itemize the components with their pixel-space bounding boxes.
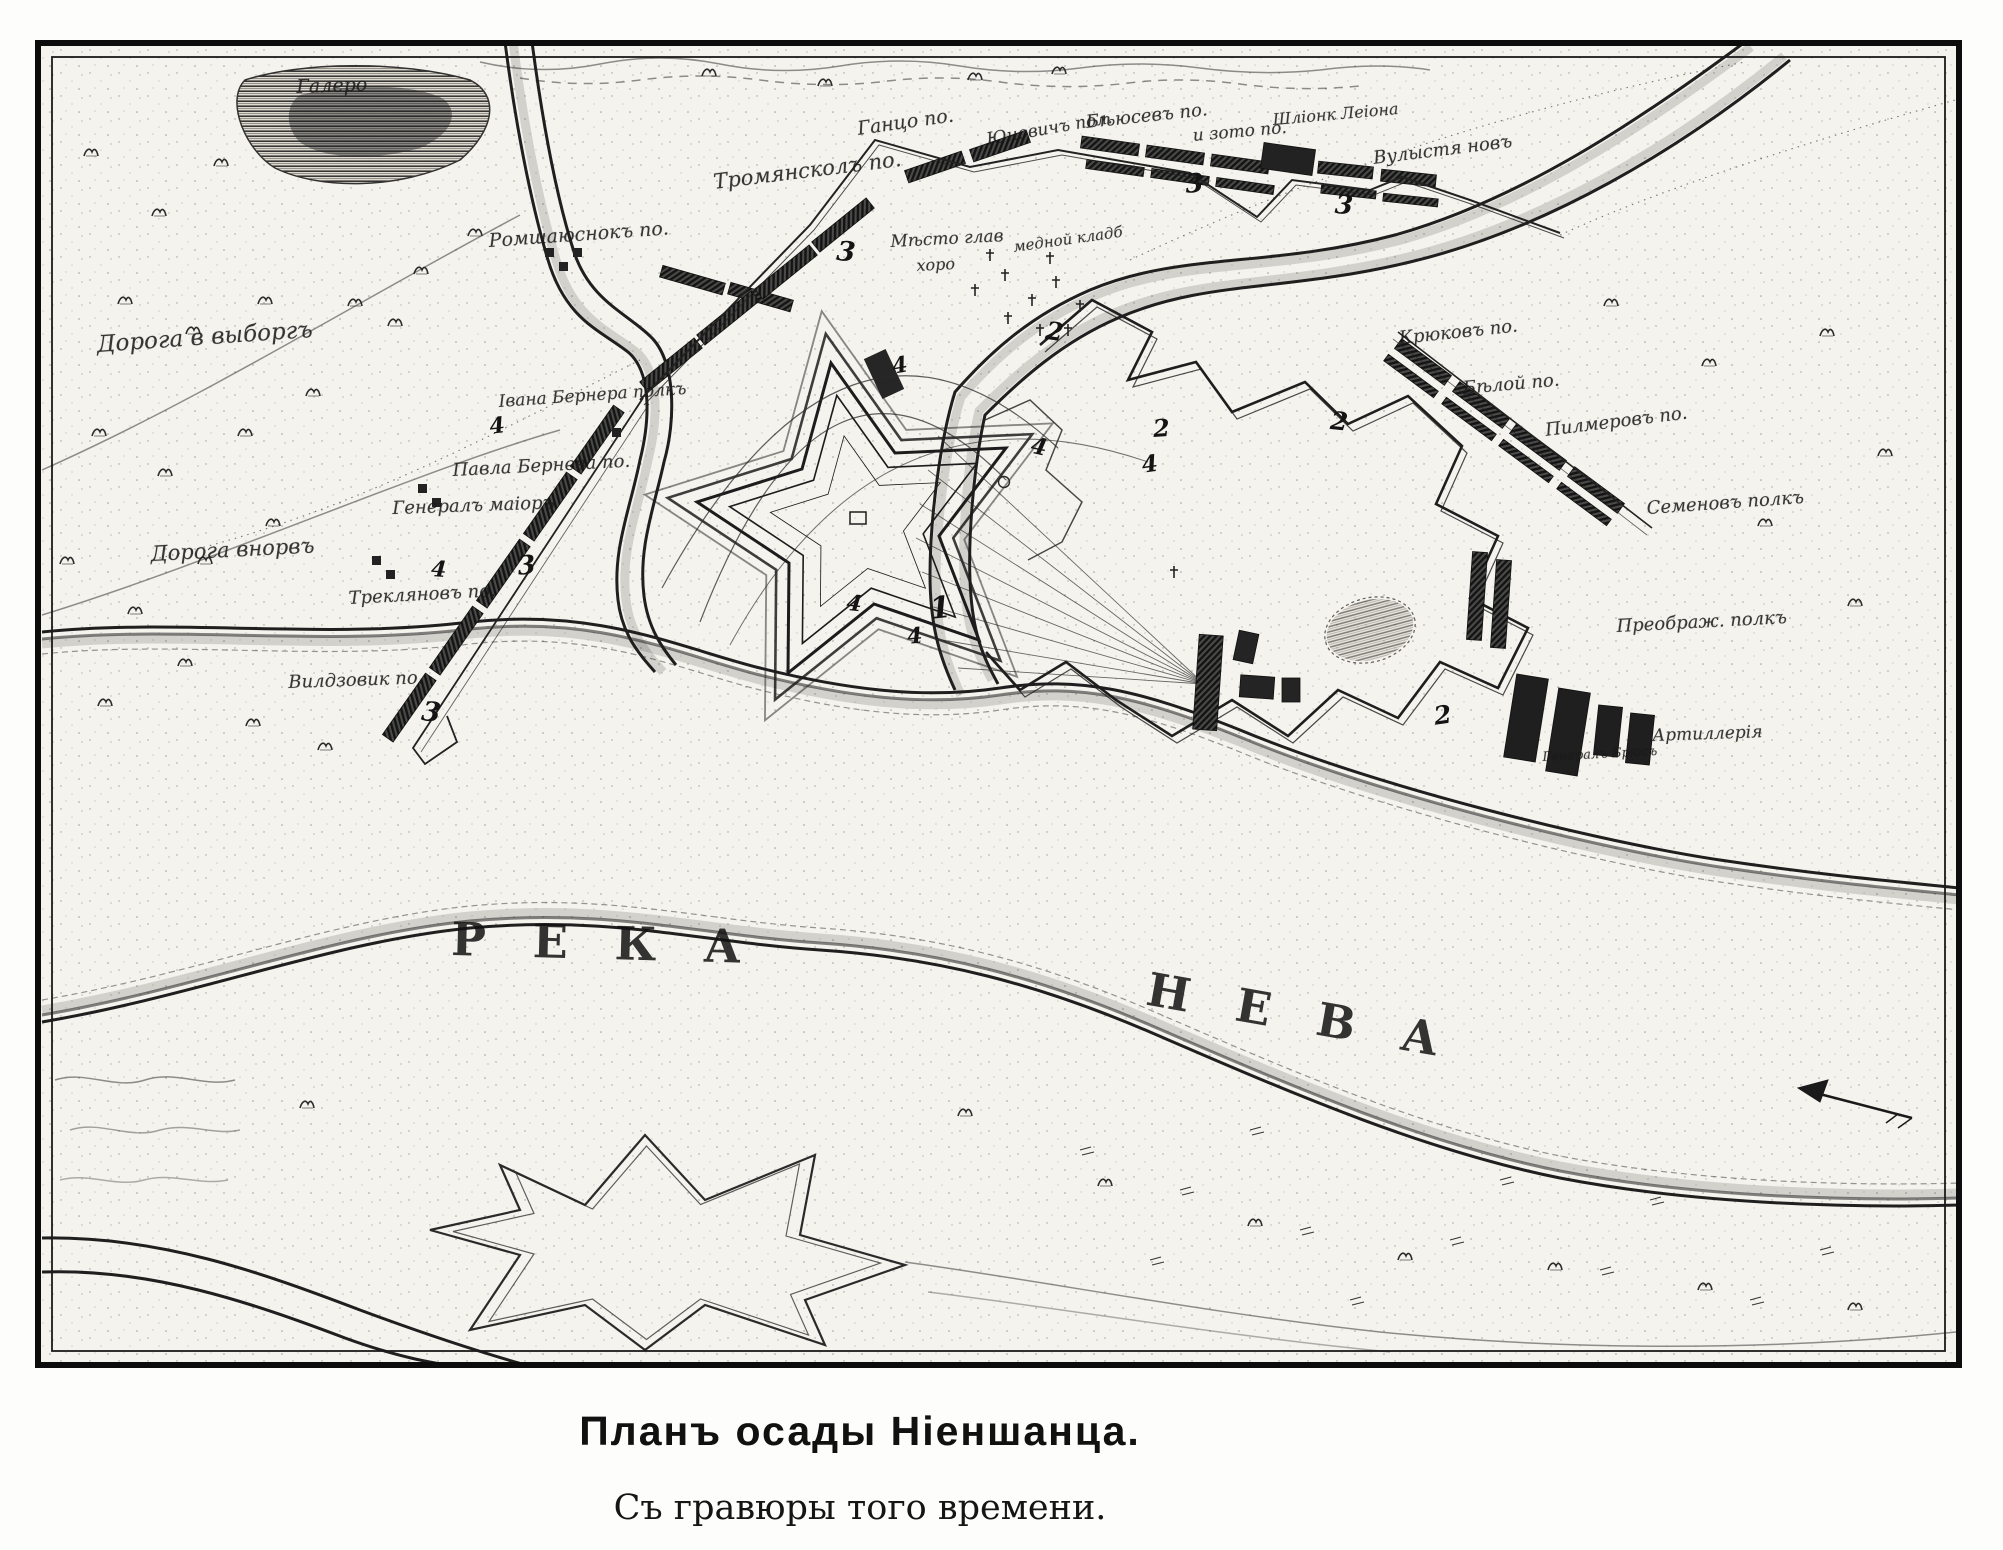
numeral-siege-e: 4 — [906, 623, 924, 650]
numeral-fortress: 1 — [928, 590, 952, 627]
caption-subtitle: Съ гравюры того времени. — [614, 1488, 1107, 1528]
river-name-reka: РЕКА — [451, 912, 789, 975]
numeral-outwork-b: 2 — [1152, 413, 1171, 443]
numeral-siege-d: 4 — [845, 590, 863, 617]
label-site-khoro: хоро — [916, 254, 955, 275]
numeral-siege-g: 4 — [488, 412, 506, 440]
numeral-siege-f: 4 — [430, 556, 447, 583]
caption-title: Планъ осады Ніеншанца. — [579, 1408, 1141, 1455]
numeral-outwork-c: 2 — [1329, 406, 1349, 437]
numeral-camp-d: 3 — [516, 550, 537, 582]
numeral-camp-b: 3 — [1184, 168, 1205, 199]
numeral-camp-c: 3 — [1334, 190, 1354, 221]
label-lake-name: Галеро — [296, 74, 368, 98]
label-artillery: Артиллерія — [1652, 722, 1763, 746]
scanned-map-page: Дорога в выборгъ Дорога внорвъ Галеро Ро… — [0, 0, 2003, 1550]
numeral-camp-a: 3 — [835, 236, 856, 269]
